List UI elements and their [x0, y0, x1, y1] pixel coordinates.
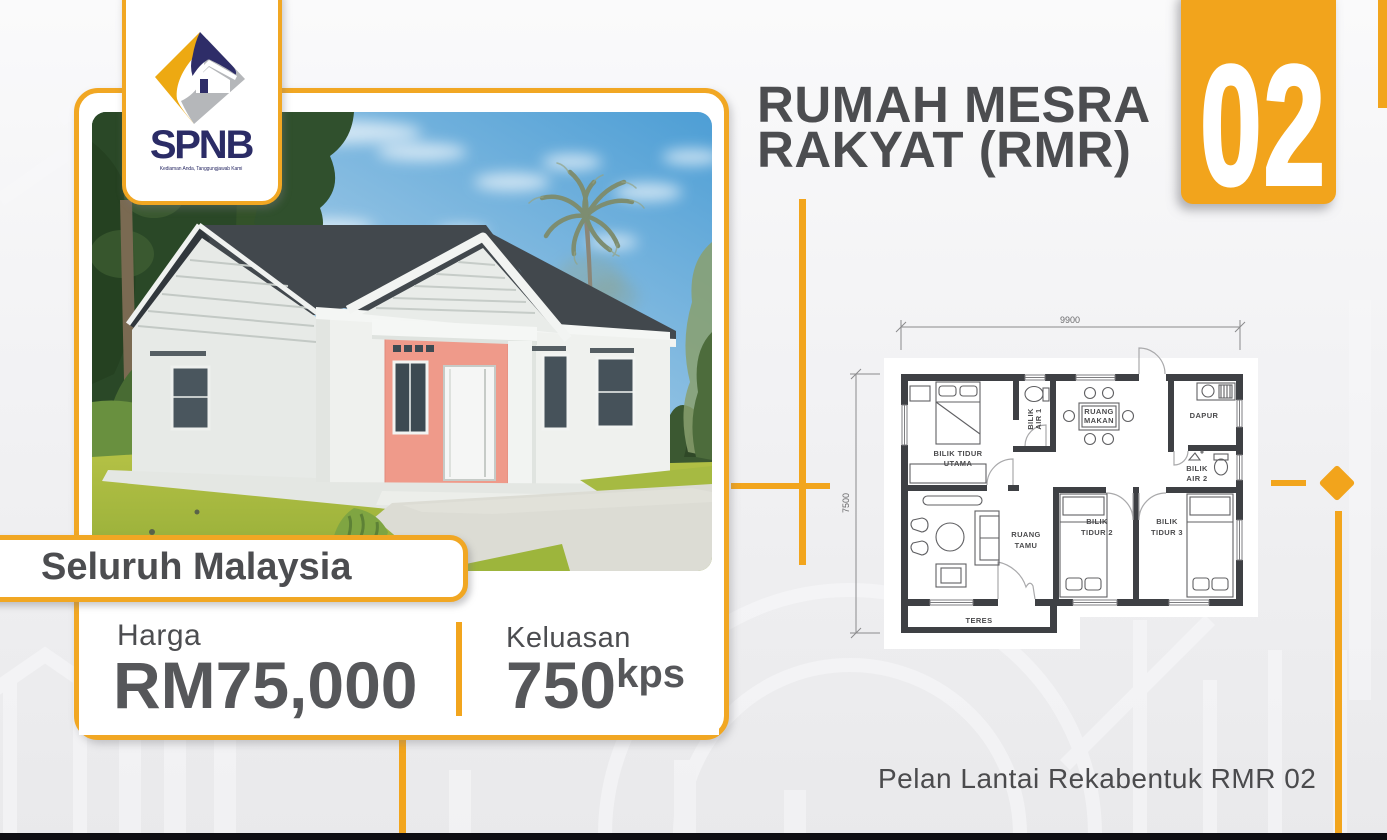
svg-text:TIDUR 3: TIDUR 3	[1151, 528, 1183, 537]
svg-text:BILIK: BILIK	[1156, 517, 1178, 526]
svg-text:AIR 2: AIR 2	[1186, 474, 1207, 483]
svg-text:DAPUR: DAPUR	[1190, 411, 1219, 420]
svg-text:TAMU: TAMU	[1015, 541, 1038, 550]
svg-text:RUANG: RUANG	[1011, 530, 1041, 539]
svg-text:AIR 1: AIR 1	[1034, 408, 1043, 429]
svg-text:BILIK: BILIK	[1186, 464, 1208, 473]
svg-text:TIDUR 2: TIDUR 2	[1081, 528, 1113, 537]
svg-text:RUANG: RUANG	[1084, 407, 1114, 416]
svg-text:MAKAN: MAKAN	[1084, 416, 1114, 425]
svg-text:7500: 7500	[841, 493, 851, 513]
svg-text:9900: 9900	[1060, 315, 1080, 325]
svg-text:TERES: TERES	[965, 616, 992, 625]
svg-text:BILIK TIDUR: BILIK TIDUR	[934, 449, 983, 458]
svg-text:BILIK: BILIK	[1086, 517, 1108, 526]
svg-text:UTAMA: UTAMA	[944, 459, 973, 468]
